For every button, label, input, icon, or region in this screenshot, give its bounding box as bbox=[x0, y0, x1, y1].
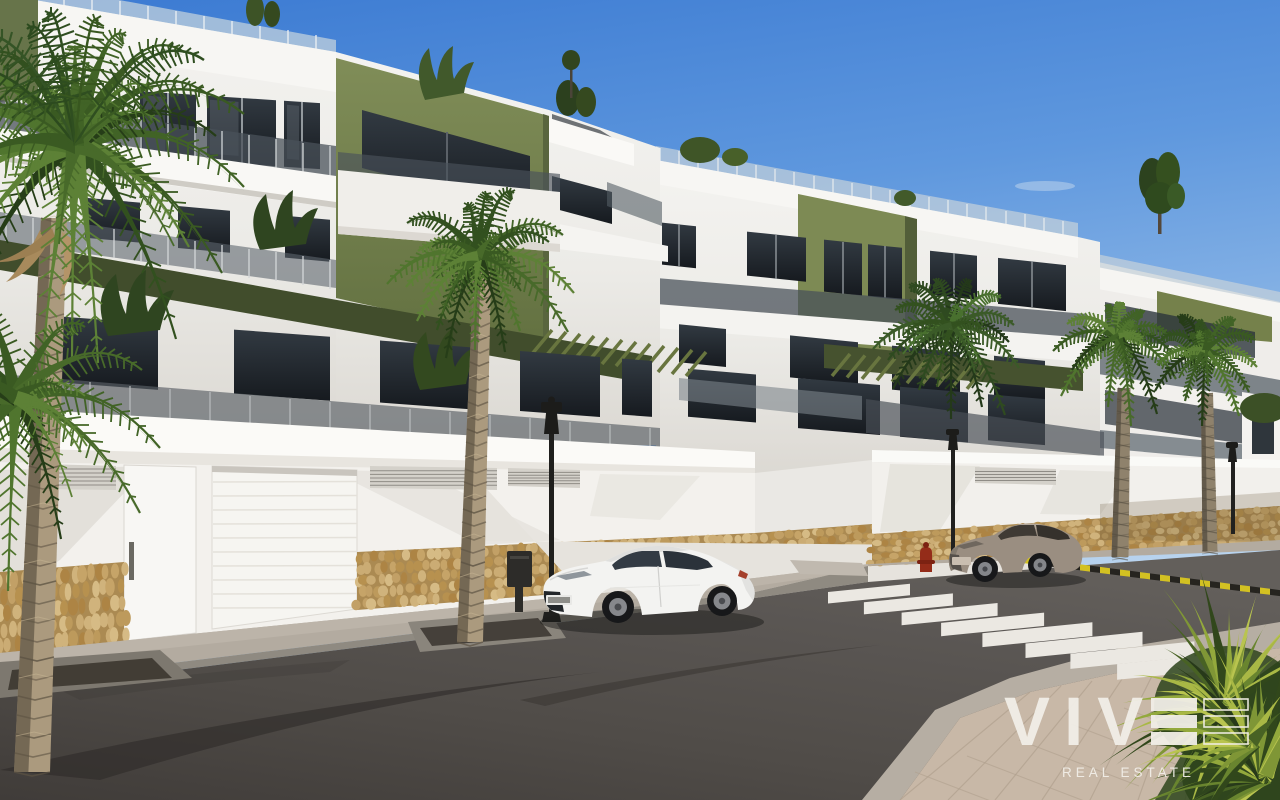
svg-text:VIV: VIV bbox=[1004, 683, 1157, 760]
svg-text:REAL ESTATE: REAL ESTATE bbox=[1062, 765, 1195, 780]
